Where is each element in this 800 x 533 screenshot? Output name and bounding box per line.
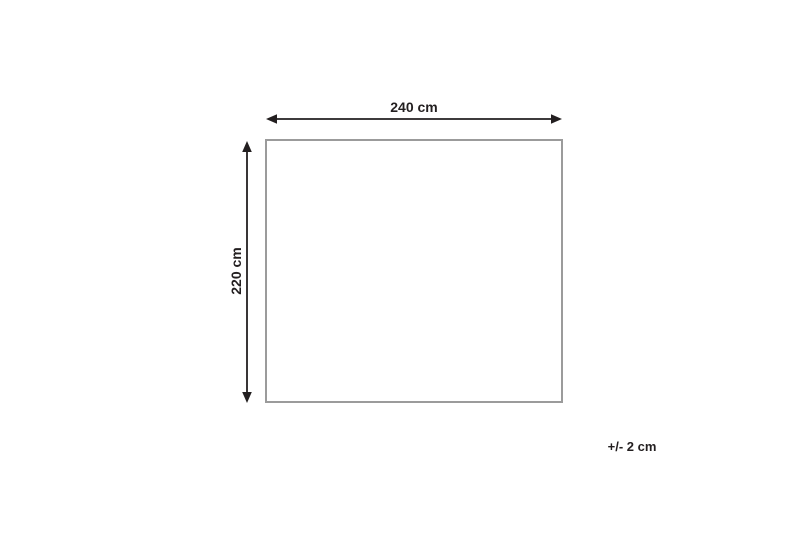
tolerance-label: +/- 2 cm bbox=[582, 439, 682, 455]
height-dimension-label: 220 cm bbox=[228, 231, 244, 311]
width-arrow-head-left bbox=[266, 114, 277, 124]
width-dimension-label: 240 cm bbox=[266, 99, 562, 115]
height-arrow-head-top bbox=[242, 141, 252, 152]
width-arrow bbox=[266, 114, 562, 124]
height-arrow-head-bottom bbox=[242, 392, 252, 403]
product-outline bbox=[266, 140, 562, 402]
dimension-diagram: 240 cm 220 cm +/- 2 cm bbox=[0, 0, 800, 533]
width-arrow-head-right bbox=[551, 114, 562, 124]
